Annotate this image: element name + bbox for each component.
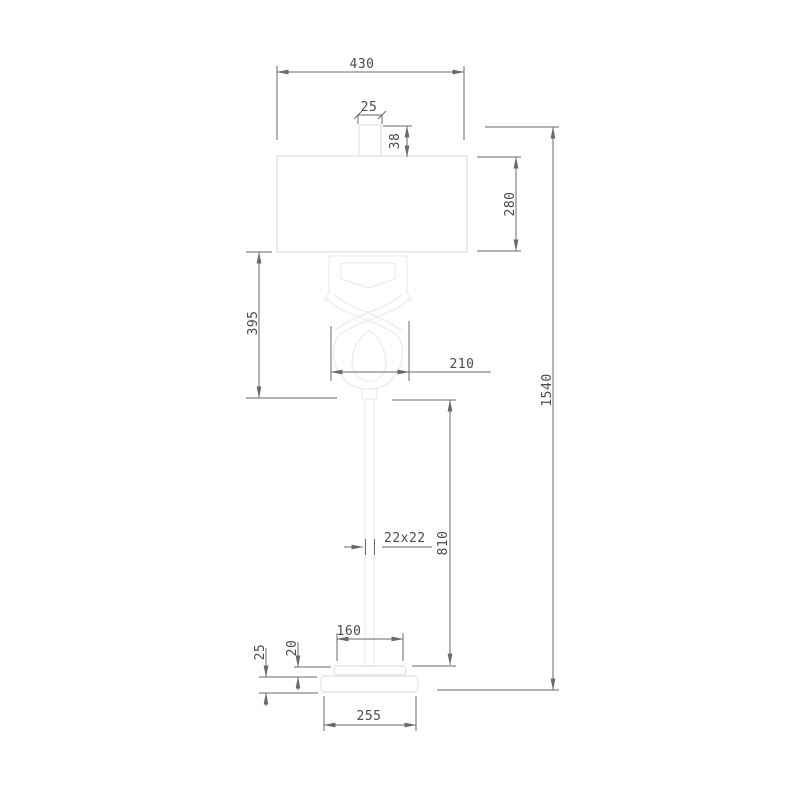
dim-upper-section-height: 395 [246,252,337,398]
dim-label-430: 430 [350,57,375,72]
technical-drawing-canvas: 430 25 38 280 395 210 1540 [0,0,800,800]
dim-total-height: 1540 [437,127,559,690]
dim-label-210: 210 [450,357,475,372]
dim-finial-width: 25 [354,100,386,124]
dim-finial-height: 38 [383,126,412,157]
loop-inner [352,330,386,381]
dim-label-22x22: 22x22 [384,531,426,546]
lamp-finial [359,125,381,156]
dim-pole-section: 22x22 [344,531,432,555]
lamp-dimension-drawing: 430 25 38 280 395 210 1540 [0,0,800,800]
dim-label-280: 280 [503,192,518,217]
ext-line [259,667,331,677]
ext-line [437,127,559,690]
dim-label-38: 38 [388,133,403,150]
bracket-feet [325,293,410,301]
lamp-upper-base [334,666,406,675]
dim-upper-base-width: 160 [337,624,403,661]
dim-upper-base-height: 20 [259,640,331,690]
dim-label-1540: 1540 [540,373,555,406]
dim-label-255: 255 [357,709,382,724]
lamp-pole [365,399,374,666]
lamp-shade [277,156,467,252]
dim-label-25-base: 25 [253,644,268,661]
arm-right-outer [337,300,408,337]
dim-label-160: 160 [337,624,362,639]
dim-label-395: 395 [246,311,261,336]
dim-label-25: 25 [361,100,378,115]
dim-decor-width: 210 [331,321,491,381]
dim-line [358,115,382,124]
lamp-decor-bracket [325,256,410,399]
ext-line [366,539,375,555]
dim-label-20: 20 [285,640,300,657]
lamp-outline [277,125,467,692]
bracket-inner-shield [341,263,395,288]
arm-right-inner [334,294,402,331]
dim-label-810: 810 [436,531,451,556]
dim-base-width: 255 [324,696,416,731]
dim-shade-width: 430 [277,57,464,140]
arm-left-outer [328,300,399,337]
lamp-base [321,676,418,692]
lamp-neck [362,389,377,399]
dim-shade-height: 280 [477,157,521,251]
